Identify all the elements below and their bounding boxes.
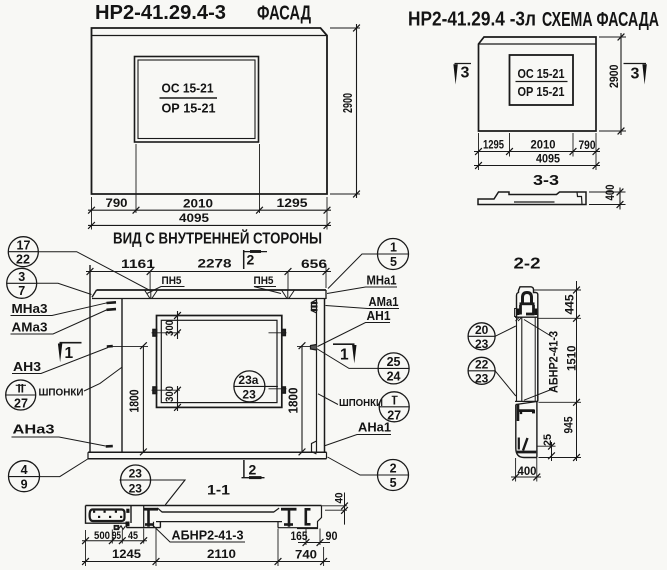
svg-text:ШПОНКИ: ШПОНКИ: [339, 397, 383, 409]
svg-text:2278: 2278: [198, 257, 232, 271]
svg-text:400: 400: [518, 464, 537, 478]
svg-text:500: 500: [94, 530, 110, 542]
svg-text:МНа1: МНа1: [367, 274, 397, 288]
svg-text:АН1: АН1: [367, 309, 391, 323]
svg-text:22: 22: [16, 253, 30, 267]
svg-text:9: 9: [21, 478, 28, 492]
svg-text:1161: 1161: [121, 257, 155, 271]
svg-text:3: 3: [461, 65, 470, 82]
svg-text:1-1: 1-1: [207, 482, 230, 498]
svg-text:НР2-41.29.4 -3л: НР2-41.29.4 -3л: [408, 9, 536, 31]
svg-text:1800: 1800: [287, 387, 301, 413]
svg-text:1245: 1245: [112, 547, 141, 561]
svg-text:95: 95: [112, 530, 121, 542]
svg-text:4095: 4095: [536, 154, 561, 166]
svg-text:90: 90: [326, 529, 338, 543]
svg-text:2: 2: [249, 462, 257, 478]
svg-text:27: 27: [14, 397, 28, 411]
svg-text:25: 25: [542, 434, 554, 446]
svg-text:1295: 1295: [277, 196, 308, 210]
svg-text:ОС 15-21: ОС 15-21: [518, 67, 565, 81]
svg-text:АМа1: АМа1: [369, 295, 399, 309]
svg-text:ОР 15-21: ОР 15-21: [162, 101, 216, 116]
svg-text:40: 40: [334, 493, 346, 504]
svg-text:АМа3: АМа3: [12, 321, 48, 335]
svg-text:ПН5: ПН5: [162, 275, 182, 287]
svg-text:4095: 4095: [179, 211, 209, 225]
svg-text:3: 3: [18, 270, 25, 284]
svg-text:45: 45: [128, 530, 138, 542]
svg-text:22: 22: [475, 358, 489, 372]
svg-text:3: 3: [631, 66, 640, 83]
svg-text:300: 300: [164, 320, 176, 336]
svg-text:656: 656: [301, 257, 327, 271]
svg-text:АНа1: АНа1: [358, 421, 391, 435]
svg-text:300: 300: [164, 386, 176, 402]
svg-text:АБНР2-41-3: АБНР2-41-3: [547, 331, 561, 393]
svg-text:23: 23: [475, 372, 489, 386]
svg-text:1295: 1295: [483, 140, 504, 152]
svg-text:I: I: [393, 395, 396, 407]
svg-text:2010: 2010: [183, 197, 213, 211]
svg-text:2: 2: [390, 462, 397, 476]
svg-text:ФАСАД: ФАСАД: [257, 2, 311, 25]
svg-text:2900: 2900: [340, 93, 355, 113]
svg-text:5: 5: [390, 476, 397, 490]
svg-text:1: 1: [390, 241, 397, 255]
svg-text:АБНР2-41-3: АБНР2-41-3: [172, 529, 244, 543]
svg-text:2900: 2900: [607, 64, 621, 88]
svg-text:165: 165: [291, 529, 308, 543]
svg-text:ОС 15-21: ОС 15-21: [162, 81, 214, 96]
svg-text:АН3: АН3: [13, 360, 41, 374]
svg-text:1: 1: [65, 345, 74, 362]
svg-text:ВИД С ВНУТРЕННЕЙ СТОРОНЫ: ВИД С ВНУТРЕННЕЙ СТОРОНЫ: [113, 229, 322, 248]
svg-text:740: 740: [295, 548, 317, 562]
svg-text:ПН5: ПН5: [254, 275, 274, 287]
svg-text:23: 23: [129, 482, 143, 496]
svg-text:24: 24: [387, 370, 401, 384]
svg-text:1510: 1510: [565, 345, 579, 371]
svg-text:1: 1: [340, 347, 349, 364]
svg-text:945: 945: [562, 416, 576, 433]
svg-text:23: 23: [242, 388, 256, 402]
svg-text:23: 23: [475, 337, 489, 351]
svg-text:25: 25: [387, 355, 401, 369]
svg-text:ОР 15-21: ОР 15-21: [518, 85, 565, 99]
svg-text:2110: 2110: [207, 547, 236, 561]
svg-text:17: 17: [17, 239, 31, 253]
svg-text:НР2-41.29.4-3: НР2-41.29.4-3: [95, 2, 226, 24]
svg-text:445: 445: [563, 294, 577, 314]
svg-text:20: 20: [475, 323, 489, 337]
svg-text:23: 23: [129, 467, 143, 481]
svg-text:7: 7: [18, 284, 25, 298]
svg-text:2-2: 2-2: [514, 256, 541, 273]
svg-text:1800: 1800: [128, 389, 142, 412]
svg-text:790: 790: [106, 196, 128, 210]
svg-text:ШПОНКИ: ШПОНКИ: [39, 387, 84, 399]
svg-text:790: 790: [579, 140, 596, 152]
svg-text:2010: 2010: [531, 140, 556, 152]
svg-text:СХЕМА ФАСАДА: СХЕМА ФАСАДА: [542, 9, 659, 31]
svg-text:5: 5: [390, 255, 397, 269]
svg-text:МНа3: МНа3: [12, 302, 48, 316]
svg-text:4: 4: [21, 463, 28, 477]
svg-text:3-3: 3-3: [533, 172, 559, 189]
svg-text:400: 400: [605, 185, 617, 201]
svg-text:2: 2: [247, 252, 255, 268]
svg-text:23а: 23а: [238, 373, 258, 387]
svg-text:АНа3: АНа3: [13, 423, 55, 437]
